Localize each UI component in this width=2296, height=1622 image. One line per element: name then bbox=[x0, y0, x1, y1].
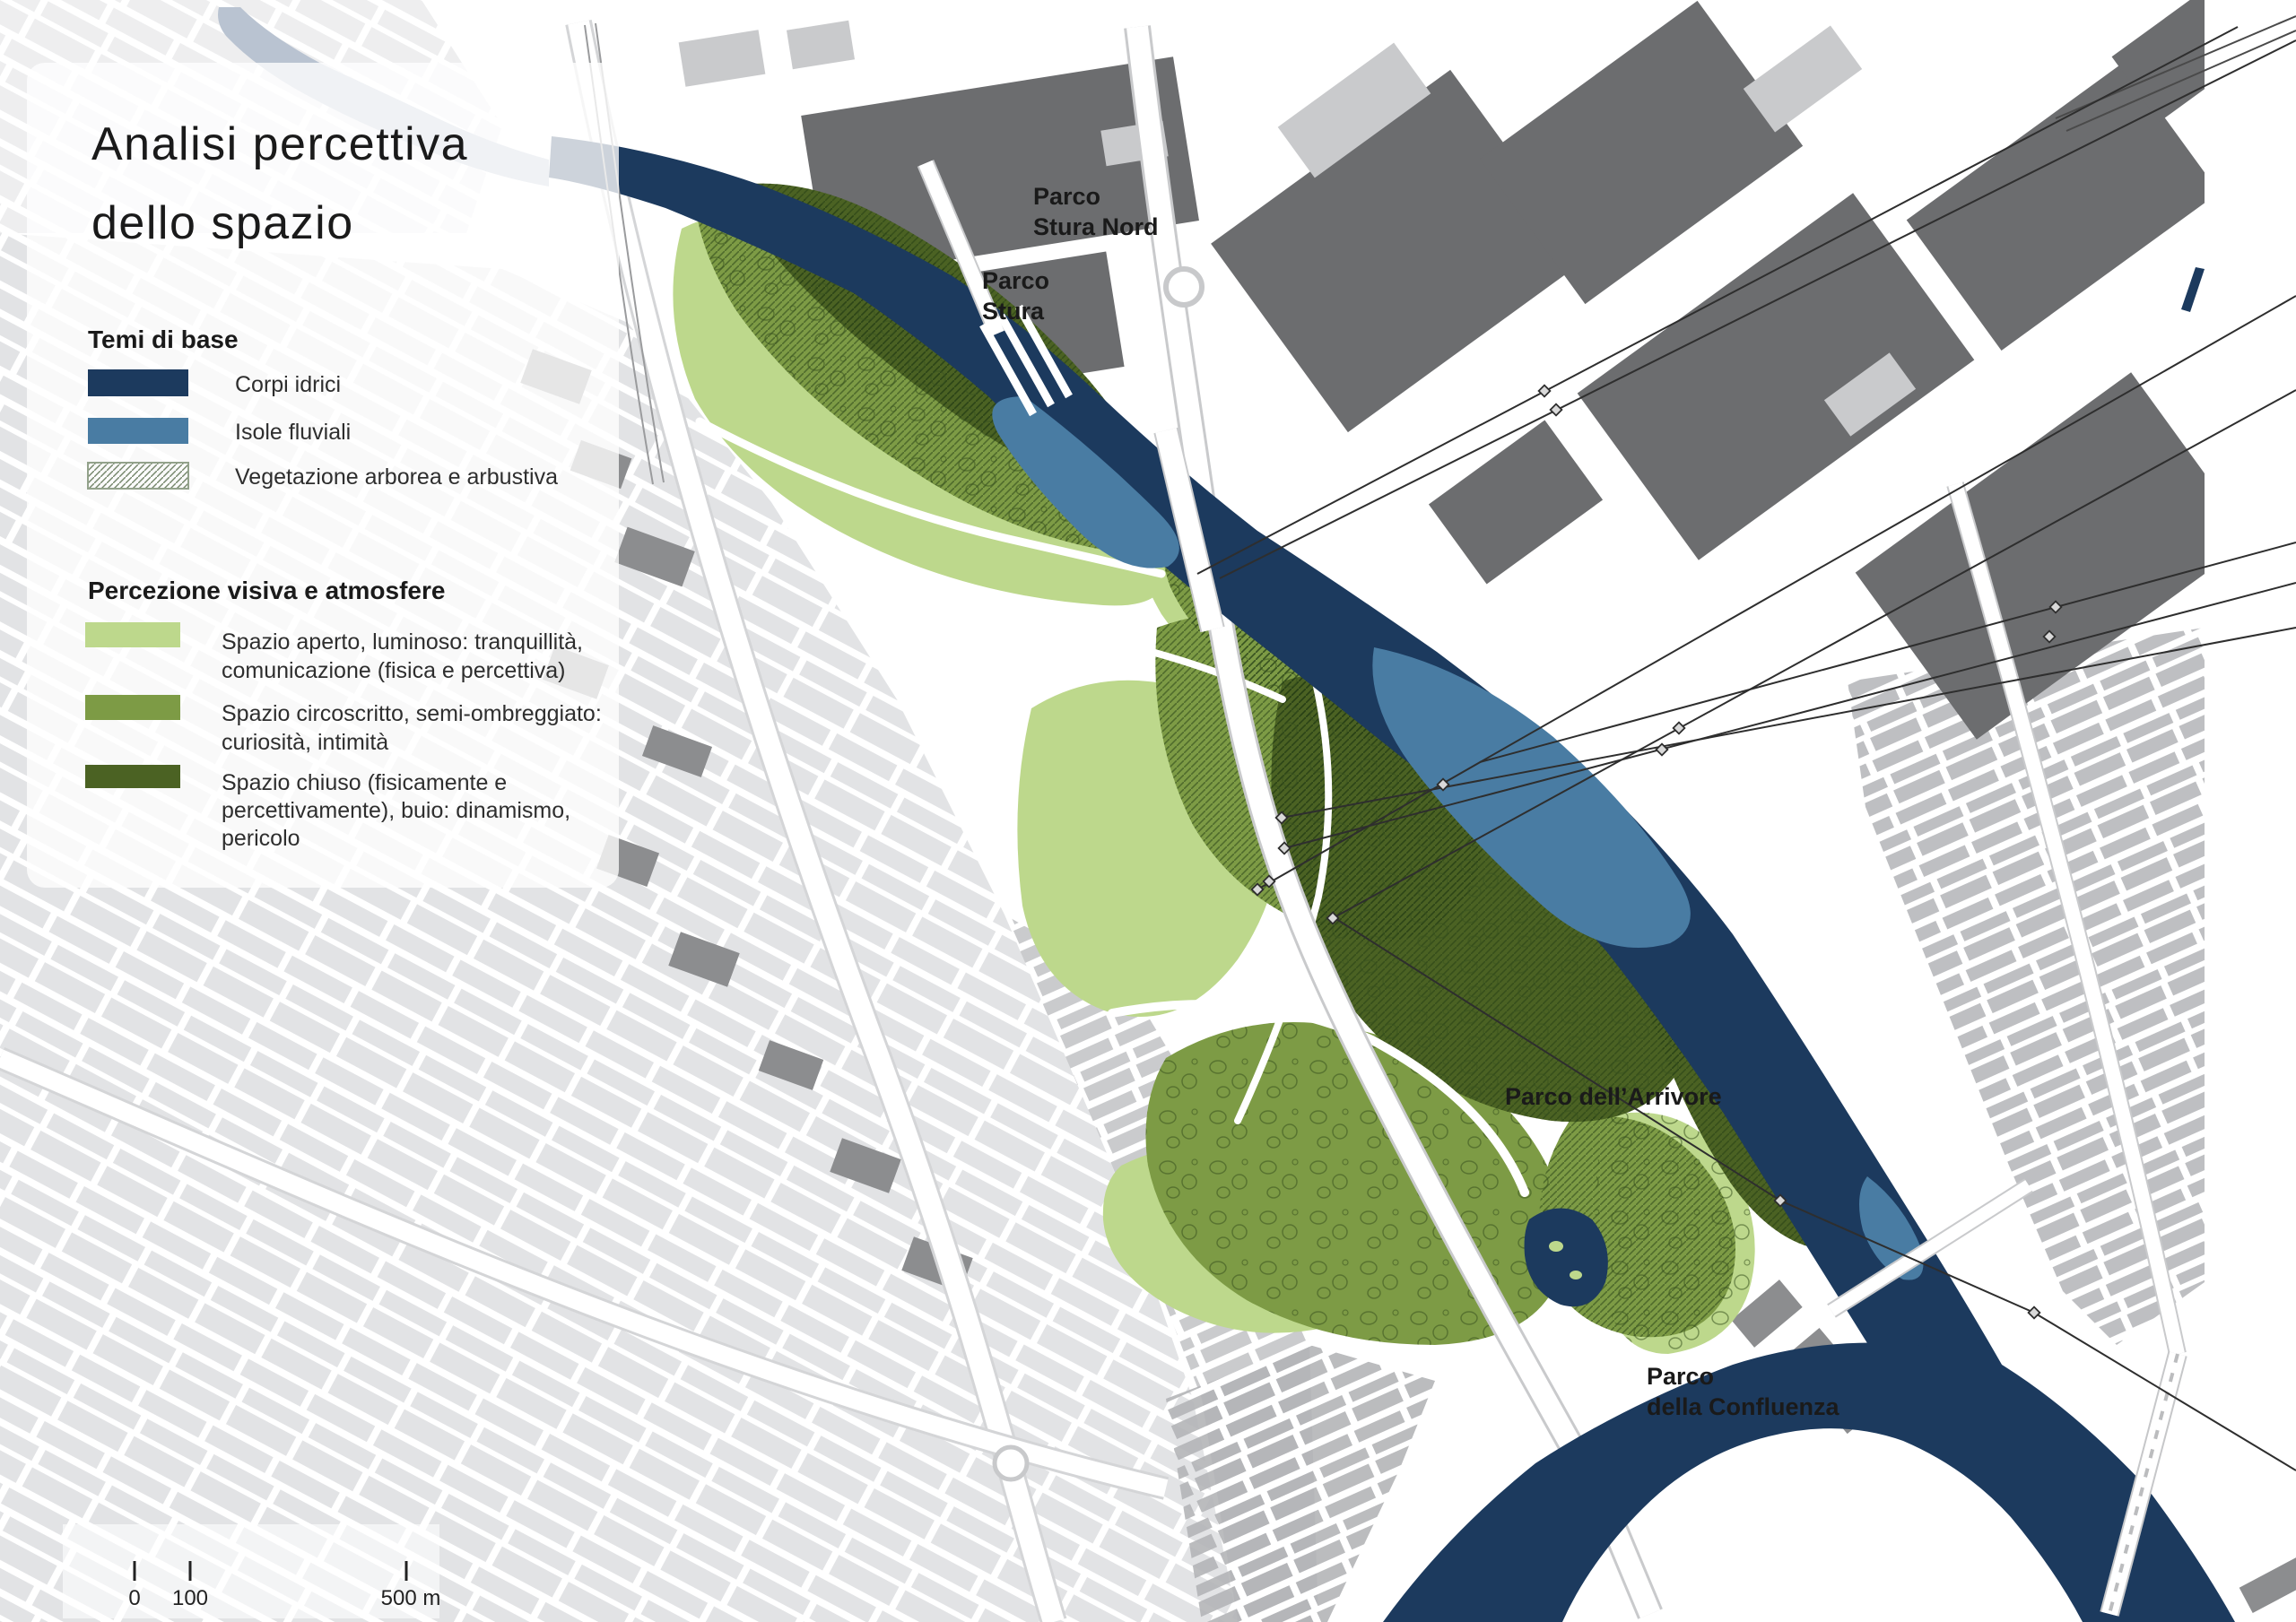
open-space-label-1: Spazio aperto, luminoso: tranquillità, bbox=[222, 629, 583, 655]
label-parco-arrivore: Parco dell’Arrivore bbox=[1505, 1083, 1722, 1110]
water-swatch bbox=[88, 369, 188, 396]
label-parco-confluenza-2: della Confluenza bbox=[1647, 1393, 1840, 1420]
scale-label-500: 500 m bbox=[381, 1586, 441, 1610]
vegetation-label: Vegetazione arborea e arbustiva bbox=[235, 464, 558, 490]
closed-space-label-3: pericolo bbox=[222, 826, 300, 851]
semi-enclosed-label-1: Spazio circoscritto, semi-ombreggiato: bbox=[222, 701, 602, 726]
label-parco-stura-nord-2: Stura Nord bbox=[1033, 213, 1159, 240]
title-line-1: Analisi percettiva bbox=[91, 118, 468, 170]
scale-label-0: 0 bbox=[128, 1586, 140, 1610]
perceptual-analysis-map: Analisi percettiva dello spazio Temi di … bbox=[0, 0, 2296, 1622]
semi-enclosed-swatch bbox=[85, 695, 180, 720]
open-space-swatch bbox=[85, 622, 180, 647]
label-parco-confluenza-1: Parco bbox=[1647, 1363, 1714, 1390]
label-parco-stura-1: Parco bbox=[982, 267, 1049, 294]
scale-label-100: 100 bbox=[172, 1586, 208, 1610]
drawing-margin bbox=[2205, 0, 2296, 1309]
pond-islet bbox=[1549, 1241, 1563, 1252]
water-label: Corpi idrici bbox=[235, 372, 341, 397]
legend-perception-heading: Percezione visiva e atmosfere bbox=[88, 577, 445, 604]
closed-space-label-2: percettivamente), buio: dinamismo, bbox=[222, 798, 570, 823]
semi-enclosed-label-2: curiosità, intimità bbox=[222, 730, 388, 755]
vegetation-swatch bbox=[88, 463, 188, 489]
closed-space-swatch bbox=[85, 765, 180, 788]
island-swatch bbox=[88, 418, 188, 444]
pond-islet bbox=[1570, 1271, 1582, 1279]
title-line-2: dello spazio bbox=[91, 197, 354, 249]
island-label: Isole fluviali bbox=[235, 420, 351, 445]
label-parco-stura-2: Stura bbox=[982, 298, 1045, 325]
open-space-label-2: comunicazione (fisica e percettiva) bbox=[222, 658, 566, 683]
closed-space-label-1: Spazio chiuso (fisicamente e bbox=[222, 770, 507, 795]
label-parco-stura-nord-1: Parco bbox=[1033, 183, 1100, 210]
legend-base-heading: Temi di base bbox=[88, 325, 239, 353]
